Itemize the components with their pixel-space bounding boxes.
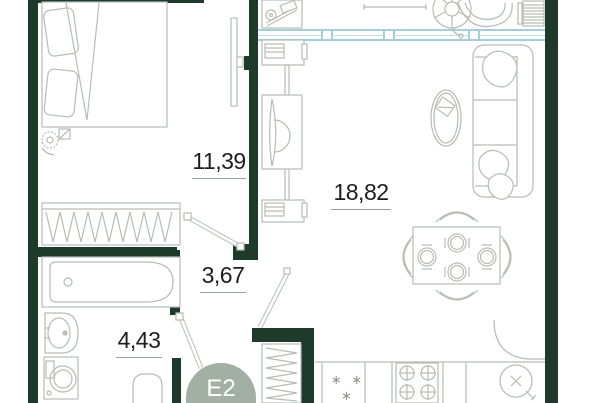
balcony-chair	[458, 3, 512, 27]
bedroom-area-label: 11,39	[192, 150, 246, 179]
kitchen-door-leaf	[260, 268, 290, 327]
tv-console	[262, 40, 307, 222]
drying-rack	[364, 4, 426, 10]
balcony-storage	[262, 0, 302, 28]
bedside-fan	[42, 129, 70, 155]
toilet	[133, 374, 162, 403]
entry-wardrobe	[262, 344, 301, 403]
hallway-area-label: 3,67	[200, 264, 246, 293]
floor-plan: 11,39 18,82 3,67 4,43 ∗ ∗ ∗ E2	[0, 0, 605, 403]
washing-machine	[44, 357, 78, 399]
tv-bedroom-icon	[231, 18, 243, 106]
bathroom-sink	[45, 313, 78, 353]
balcony-plant	[433, 0, 471, 38]
bathroom-area-label: 4,43	[116, 329, 162, 358]
coffee-table	[431, 90, 461, 146]
sofa	[473, 45, 533, 199]
bathtub	[42, 257, 180, 307]
kitchen-sink	[500, 365, 536, 400]
dining-table	[413, 227, 500, 284]
stove	[396, 363, 438, 403]
unit-badge-label: E2	[206, 377, 235, 403]
freezer-symbol: ∗ ∗ ∗	[326, 372, 370, 403]
bedroom-door-leaf	[184, 213, 244, 250]
living-area-label: 18,82	[331, 181, 391, 210]
wardrobe-bedroom	[42, 203, 180, 245]
double-bed	[42, 2, 167, 127]
radiator	[518, 1, 544, 26]
